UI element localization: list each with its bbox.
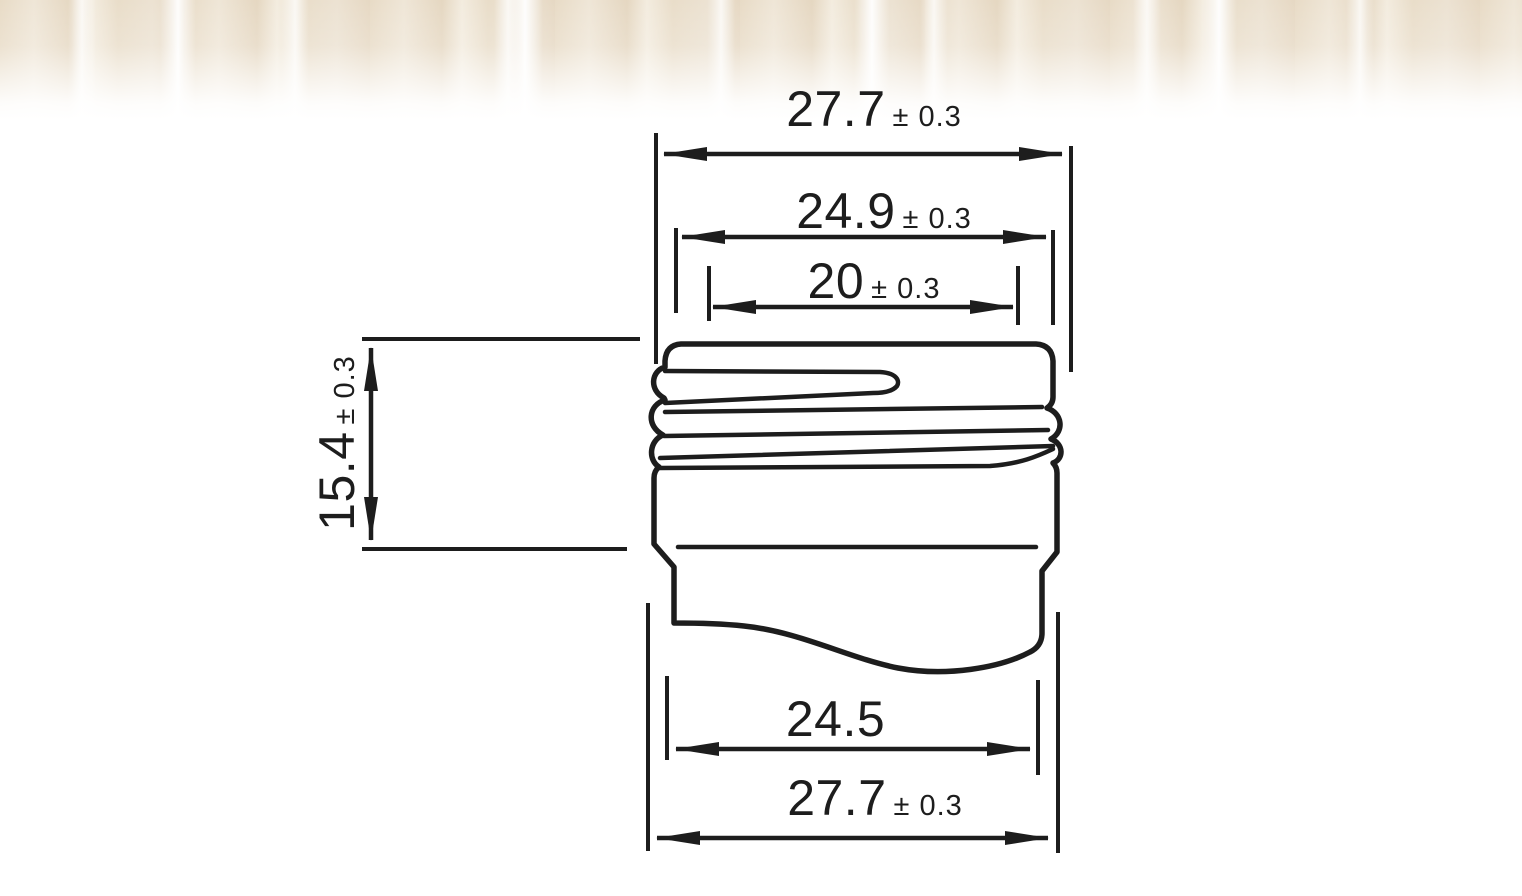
shoulder-label: 24.5 (786, 694, 892, 744)
cap-technical-drawing (0, 0, 1522, 896)
bottom-width-label: 27.7 ± 0.3 (787, 773, 963, 823)
top-width-tolerance: ± 0.3 (893, 103, 962, 132)
neck-height-value: 15.4 (312, 431, 362, 530)
shoulder-value: 24.5 (786, 694, 885, 744)
cap-profile (651, 344, 1061, 672)
thread-inner-label: 20 ± 0.3 (808, 256, 941, 306)
thread-inner-value: 20 (808, 256, 865, 306)
neck-height-label: 15.4 ± 0.3 (312, 355, 362, 531)
neck-height-tolerance: ± 0.3 (331, 355, 360, 424)
top-width-value: 27.7 (786, 84, 885, 134)
technical-drawing-page: 27.7 ± 0.3 24.9 ± 0.3 20 ± 0.3 15.4 ± 0.… (0, 0, 1522, 896)
bottom-width-tolerance: ± 0.3 (894, 792, 963, 821)
thread-outer-value: 24.9 (796, 186, 895, 236)
bottom-width-value: 27.7 (787, 773, 886, 823)
thread-outer-label: 24.9 ± 0.3 (796, 186, 972, 236)
top-width-label: 27.7 ± 0.3 (786, 84, 962, 134)
thread-inner-tolerance: ± 0.3 (871, 275, 940, 304)
thread-outer-tolerance: ± 0.3 (903, 205, 972, 234)
